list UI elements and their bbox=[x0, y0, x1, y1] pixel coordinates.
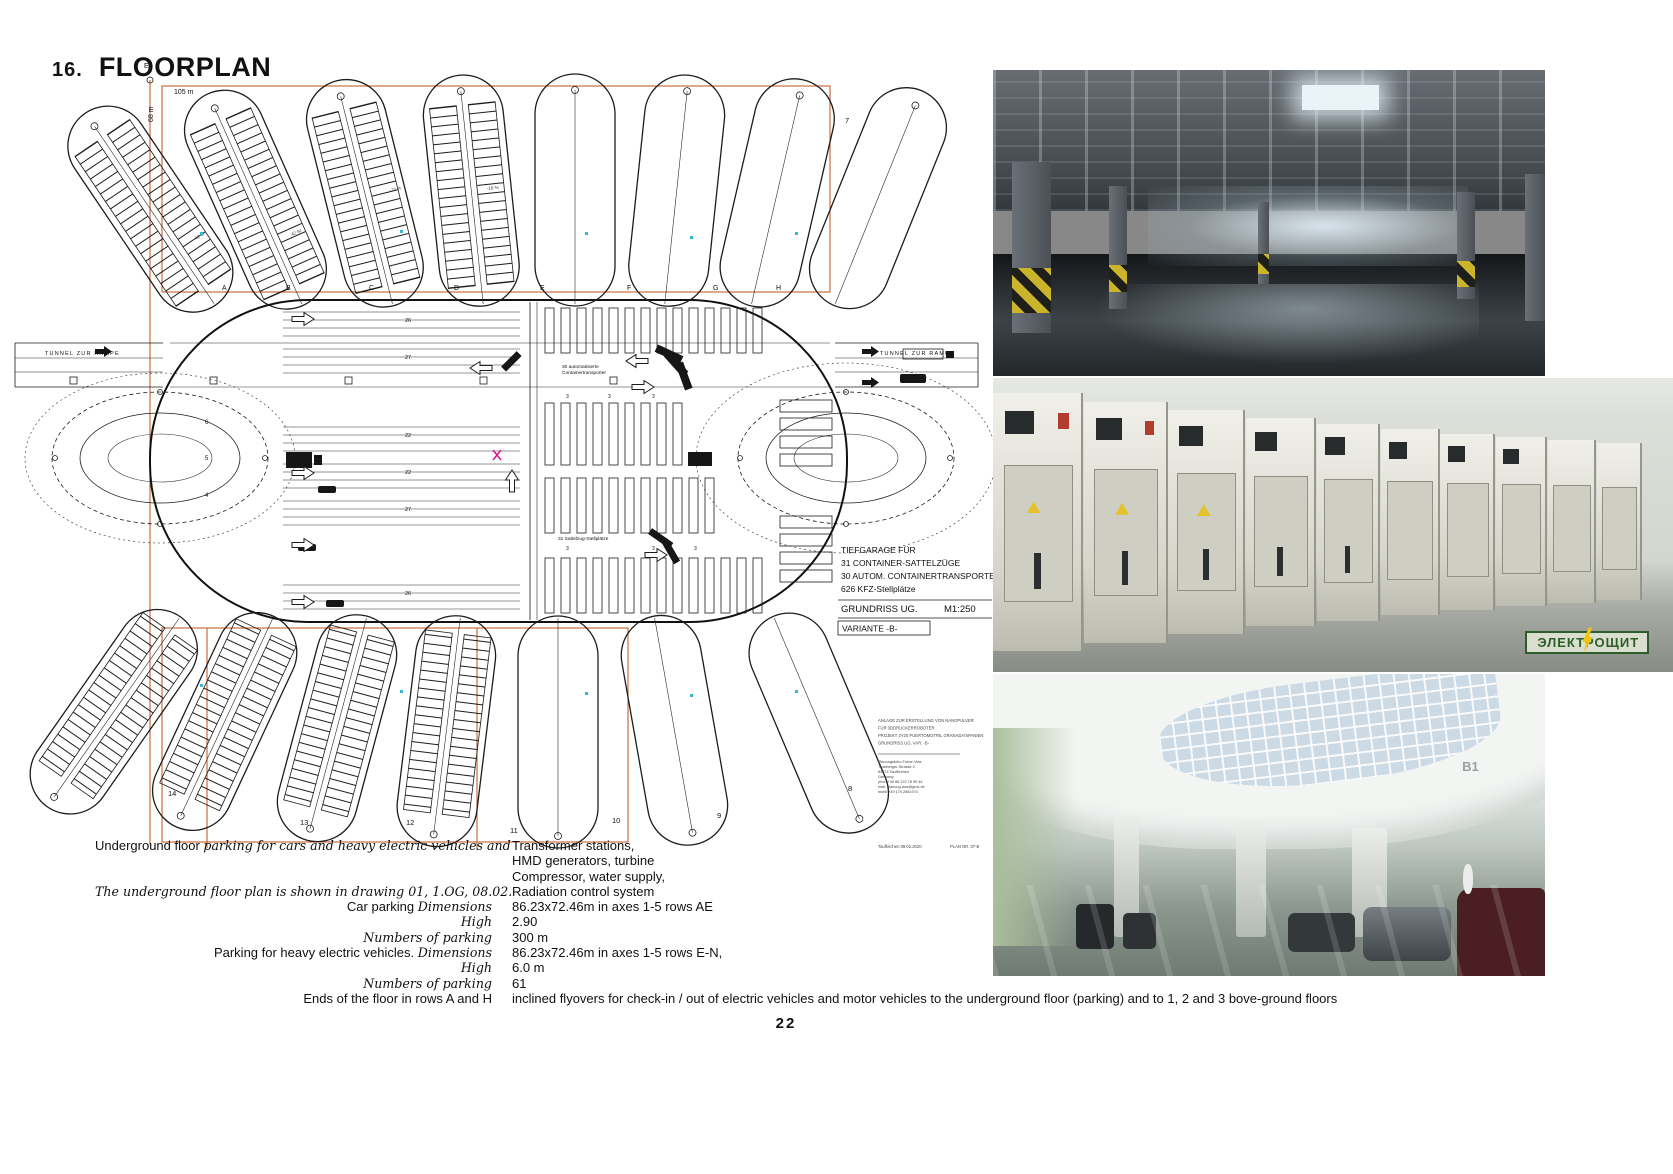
spec-label-italic: High bbox=[461, 914, 492, 929]
ceiling-light bbox=[1302, 85, 1379, 109]
parking-finger bbox=[712, 71, 842, 315]
switchgear-cabinet bbox=[1168, 410, 1245, 633]
slot-label: 3 bbox=[694, 546, 697, 552]
row-label: 26 bbox=[405, 318, 411, 324]
cabinet-display bbox=[1179, 426, 1203, 446]
slot-label: 3 bbox=[652, 394, 655, 400]
stamp-line: GRUNDRISS UG. VAR. -B- bbox=[878, 741, 930, 746]
spec-row: High2.90 bbox=[95, 914, 1565, 929]
cabinet-handle bbox=[1345, 546, 1350, 574]
spec-label-italic: Numbers of parking bbox=[363, 976, 492, 991]
cabinet-door bbox=[1387, 481, 1432, 579]
parking-finger bbox=[625, 71, 729, 310]
parking-finger bbox=[419, 71, 523, 310]
row-label: 26 bbox=[405, 591, 411, 597]
spec-label-italic: parking for cars and heavy electric vehi… bbox=[203, 838, 510, 853]
switchgear-cabinet bbox=[1246, 418, 1316, 627]
plan-shape bbox=[835, 105, 915, 303]
spec-value: 2.90 bbox=[512, 914, 537, 929]
axis-letter: E bbox=[144, 63, 149, 70]
switchgear-cabinet bbox=[1084, 402, 1168, 643]
row-label: 22 bbox=[405, 433, 411, 439]
expansion-joint bbox=[70, 377, 77, 384]
slot-label: 3 bbox=[608, 394, 611, 400]
row-label: 27 bbox=[405, 355, 411, 361]
cabinet-display bbox=[1389, 442, 1407, 459]
slot-label: 3 bbox=[566, 546, 569, 552]
spec-label: Car parking bbox=[347, 899, 418, 914]
plan-shape bbox=[688, 829, 696, 837]
plan-shape bbox=[94, 126, 214, 303]
finger-number: 13 bbox=[300, 818, 308, 827]
light-glow bbox=[1148, 186, 1468, 266]
spec-row: Underground floor parking for cars and h… bbox=[95, 838, 1565, 853]
spec-row: Parking for heavy electric vehicles. Dim… bbox=[95, 945, 1565, 960]
photo-parking-garage bbox=[993, 70, 1545, 376]
spec-value: 86.23x72.46m in axes 1-5 rows E-N, bbox=[512, 945, 722, 960]
cyan-mark bbox=[690, 236, 693, 239]
grid-letter: G bbox=[713, 285, 718, 292]
pillar bbox=[1012, 162, 1051, 333]
spec-label-italic: Dimensions bbox=[418, 945, 492, 960]
parking-finger bbox=[737, 601, 901, 846]
plan-shape bbox=[855, 814, 864, 823]
cyan-mark bbox=[200, 684, 203, 687]
cabinet-handle bbox=[1203, 549, 1209, 580]
finger-number: 14 bbox=[168, 789, 176, 798]
cabinet-display bbox=[1503, 449, 1519, 464]
grid-letter: B bbox=[286, 285, 291, 292]
cabinet-display bbox=[1096, 418, 1122, 440]
floorplan-drawing: E 68 m 105 m TUNNEL ZUR RAMPE TUNNEL ZUR… bbox=[0, 0, 1000, 880]
cabinet-handle bbox=[1122, 551, 1129, 585]
hazard-stripes bbox=[1012, 268, 1051, 313]
parking-finger bbox=[393, 611, 501, 851]
finger-number: 7 bbox=[845, 116, 849, 125]
stamp-line: 84574 Taufkirchen bbox=[878, 770, 909, 774]
photo-switchgear-room: ЭЛЕКТРОЩИТ bbox=[993, 378, 1673, 672]
cabinet-handle bbox=[1277, 547, 1282, 576]
switchgear-cabinet bbox=[1496, 437, 1547, 606]
title-line: 626 KFZ-Stellplätze bbox=[841, 584, 916, 594]
spec-label: Underground floor bbox=[95, 838, 203, 853]
plan-shape bbox=[429, 106, 475, 289]
tunnel-label-right: TUNNEL ZUR RAMPE bbox=[880, 351, 955, 357]
switchgear-cabinet bbox=[993, 393, 1083, 652]
stamp-line: ANLAGE ZUR ERSTELLUNG VON NANOPULVER bbox=[878, 718, 974, 723]
spec-value: 86.23x72.46m in axes 1-5 rows AE bbox=[512, 899, 713, 914]
level-label: B1 bbox=[1462, 759, 1479, 774]
row-label: 27 bbox=[405, 507, 411, 513]
spec-label-italic: Dimensions bbox=[418, 899, 492, 914]
plan-shape bbox=[54, 618, 179, 797]
finger-number: 8 bbox=[848, 784, 852, 793]
variant-label: VARIANTE -B- bbox=[842, 624, 898, 634]
cyan-mark bbox=[400, 230, 403, 233]
title-block: TIEFGARAGE FÜR 31 CONTAINER-SATTELZÜGE 3… bbox=[838, 545, 1000, 635]
cabinet-door bbox=[1553, 485, 1590, 572]
drawing-scale: M1:250 bbox=[944, 604, 976, 615]
stamp-line: Trostberger-Strasse 2 bbox=[878, 765, 915, 769]
grid-letter: A bbox=[222, 285, 227, 292]
grid-letter: C bbox=[369, 285, 374, 292]
grid-letter: E bbox=[540, 285, 545, 292]
spec-label-italic: Numbers of parking bbox=[363, 930, 492, 945]
plan-shape bbox=[752, 95, 800, 304]
title-line: 30 AUTOM. CONTAINERTRANSPORTER bbox=[841, 571, 1000, 581]
switchgear-cabinet bbox=[1440, 434, 1495, 610]
drawing-name: GRUNDRISS UG. bbox=[841, 604, 918, 615]
cabinet-display bbox=[1325, 437, 1345, 455]
pillar bbox=[1109, 186, 1127, 308]
spec-value: Compressor, water supply, bbox=[512, 869, 665, 884]
plan-shape bbox=[665, 91, 687, 304]
spec-row: The underground floor plan is shown in d… bbox=[95, 884, 1565, 899]
title-line: 31 CONTAINER-SATTELZÜGE bbox=[841, 558, 961, 568]
plan-shape bbox=[911, 101, 920, 110]
slot-label: 3 bbox=[566, 394, 569, 400]
finger-number: 10 bbox=[612, 816, 620, 825]
spec-row: Numbers of parking300 m bbox=[95, 930, 1565, 945]
main-hall-outline bbox=[150, 300, 847, 622]
tunnel-label-left: TUNNEL ZUR RAMPE bbox=[45, 351, 120, 357]
cabinet-handle bbox=[1034, 553, 1041, 589]
parking-finger bbox=[298, 71, 432, 315]
hazard-stripes bbox=[1109, 265, 1127, 292]
spec-row: Car parking Dimensions86.23x72.46m in ax… bbox=[95, 899, 1565, 914]
stamp-line: FÜR 3DDRUCKERROBOTER bbox=[878, 726, 935, 731]
spec-value: 6.0 m bbox=[512, 960, 545, 975]
document-page: 16. FLOORPLAN bbox=[0, 0, 1673, 1174]
dim-width: 105 m bbox=[174, 89, 194, 96]
spec-label-italic: High bbox=[461, 960, 492, 975]
spec-value: Transformer stations, bbox=[512, 838, 634, 853]
parking-finger bbox=[139, 599, 310, 843]
pillar bbox=[1258, 202, 1269, 285]
cabinet-door bbox=[1447, 483, 1489, 577]
parking-finger bbox=[268, 606, 405, 851]
spec-value: HMD generators, turbine bbox=[512, 853, 654, 868]
cabinet-door bbox=[1602, 487, 1637, 571]
finger-number: 11 bbox=[510, 826, 518, 835]
top-parking-fingers bbox=[52, 71, 958, 328]
cyan-mark bbox=[585, 692, 588, 695]
grid-letter: D bbox=[454, 285, 459, 292]
cyan-mark bbox=[690, 694, 693, 697]
spec-value: inclined flyovers for check-in / out of … bbox=[512, 991, 1337, 1006]
switchgear-cabinet bbox=[1381, 429, 1440, 614]
spec-label-italic: The underground floor plan is shown in d… bbox=[95, 884, 512, 899]
spec-table: Underground floor parking for cars and h… bbox=[95, 838, 1565, 1006]
parking-finger bbox=[797, 76, 958, 321]
slot-label: 3 bbox=[652, 546, 655, 552]
cyan-mark bbox=[585, 232, 588, 235]
note-transporter: Containertransporter bbox=[562, 370, 606, 376]
cabinet-door bbox=[1502, 484, 1541, 574]
cabinet-display bbox=[1005, 411, 1033, 434]
plan-shape bbox=[403, 630, 452, 813]
cyan-mark bbox=[200, 232, 203, 235]
spec-value: 61 bbox=[512, 976, 526, 991]
cabinet-display bbox=[1448, 446, 1465, 462]
row-label: 22 bbox=[405, 470, 411, 476]
spec-label: Ends of the floor in rows A and H bbox=[303, 991, 492, 1006]
plan-shape bbox=[49, 792, 59, 802]
floor-reflection bbox=[1092, 284, 1478, 364]
bottom-parking-fingers bbox=[14, 594, 900, 852]
cabinet-button bbox=[1058, 413, 1069, 429]
spec-label: Parking for heavy electric vehicles. bbox=[214, 945, 418, 960]
stamp-line: phon +49 86 222 78 59 46 bbox=[878, 780, 922, 784]
electroshield-badge: ЭЛЕКТРОЩИТ bbox=[1525, 631, 1649, 654]
spec-row: High6.0 m bbox=[95, 960, 1565, 975]
grid-letter: F bbox=[627, 285, 631, 292]
spec-row: Compressor, water supply, bbox=[95, 869, 1565, 884]
stamp-line: Planungsbüro Furrer-Vias bbox=[878, 760, 922, 764]
hazard-stripes bbox=[1457, 261, 1476, 287]
switchgear-cabinet bbox=[1317, 424, 1380, 621]
page-number: 22 bbox=[756, 1015, 816, 1032]
spec-row: Ends of the floor in rows A and Hincline… bbox=[95, 991, 1565, 1006]
spec-value: 300 m bbox=[512, 930, 548, 945]
cabinet-display bbox=[1255, 432, 1277, 451]
parking-finger bbox=[535, 74, 615, 306]
switchgear-cabinet bbox=[1597, 443, 1643, 600]
cyan-mark bbox=[795, 690, 798, 693]
grid-letter: H bbox=[776, 285, 781, 292]
spec-row: Numbers of parking61 bbox=[95, 976, 1565, 991]
plan-shape bbox=[442, 635, 491, 818]
note-transporter: 30 automatisierte bbox=[562, 364, 599, 370]
note-sattelzug: 31 Sattelzug-Stellplätze bbox=[558, 536, 609, 542]
pillar bbox=[1457, 192, 1476, 299]
cyan-mark bbox=[795, 232, 798, 235]
stamp-line: PROJEKT 3Y20 PUERTOMOTRIL GRANADA/SPANIE… bbox=[878, 733, 983, 738]
plan-shape bbox=[774, 618, 859, 819]
stamp-line: mail: planung.vias@gmx.de bbox=[878, 785, 925, 789]
switchgear-cabinet bbox=[1548, 440, 1596, 603]
hazard-stripes bbox=[1258, 254, 1269, 274]
stamp-block: ANLAGE ZUR ERSTELLUNG VON NANOPULVER FÜR… bbox=[878, 718, 983, 849]
parking-finger bbox=[518, 616, 598, 848]
plan-shape bbox=[468, 102, 514, 285]
dim-height: 68 m bbox=[148, 106, 155, 122]
parking-finger bbox=[172, 77, 339, 321]
plan-shape bbox=[655, 618, 693, 833]
finger-number: 12 bbox=[406, 818, 414, 827]
stamp-line: Germany bbox=[878, 775, 894, 779]
stamp-line: mobil +49 170 2881974 bbox=[878, 790, 918, 794]
parking-finger bbox=[14, 594, 213, 830]
finger-number: 9 bbox=[717, 811, 721, 820]
cabinet-button bbox=[1145, 421, 1155, 435]
cyan-mark bbox=[400, 690, 403, 693]
spec-value: Radiation control system bbox=[512, 884, 654, 899]
pillar bbox=[1525, 174, 1545, 321]
spec-row: HMD generators, turbine bbox=[95, 853, 1565, 868]
title-line: TIEFGARAGE FÜR bbox=[841, 545, 916, 555]
